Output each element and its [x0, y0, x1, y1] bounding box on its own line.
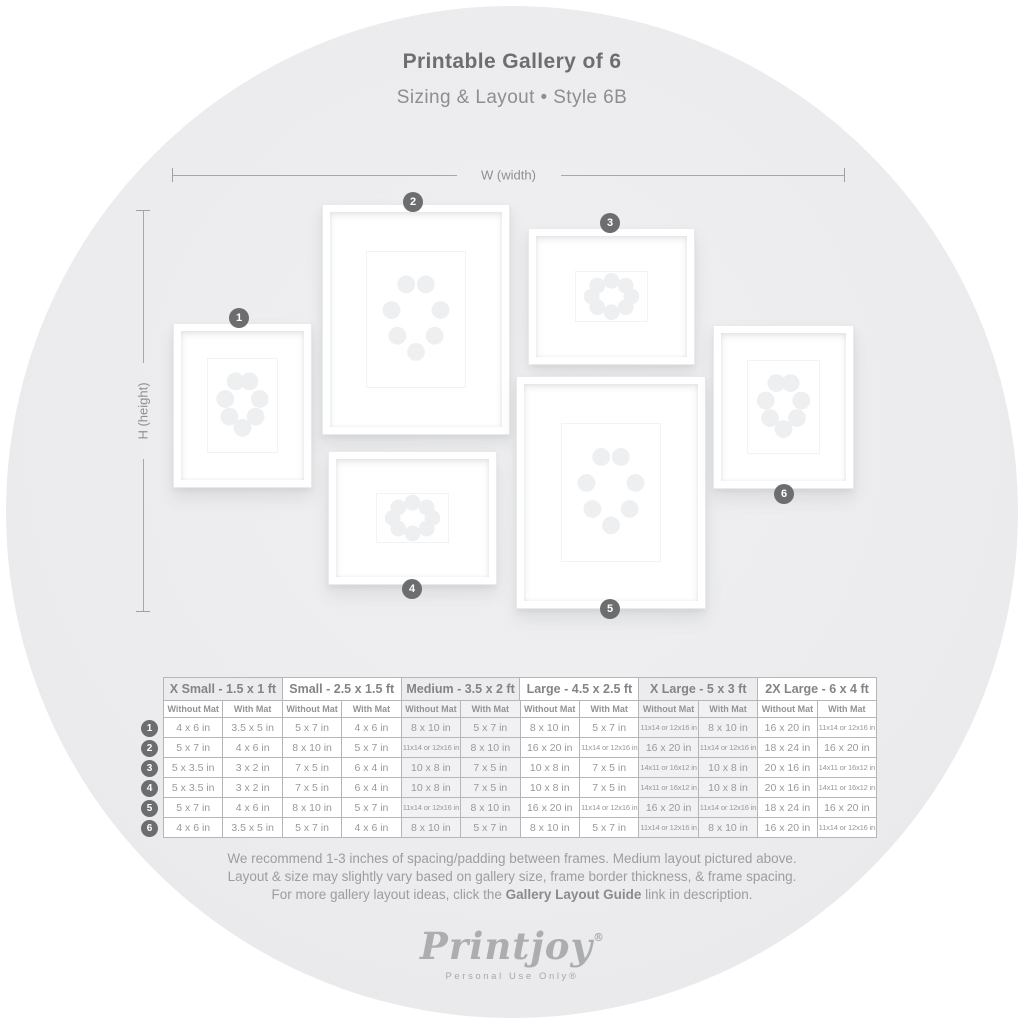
page-subtitle: Sizing & Layout • Style 6B [0, 87, 1024, 109]
width-line-left [172, 175, 457, 176]
frame-5-art [561, 423, 662, 562]
header-xlarge: X Large - 5 x 3 ft [638, 678, 757, 700]
row-badge-6: 6 [141, 820, 158, 837]
size-cell: 14x11 or 16x12 in [638, 758, 697, 777]
frame-4-mat [336, 459, 489, 577]
size-cell: 16 x 20 in [757, 718, 816, 737]
size-cell: 4 x 6 in [164, 718, 222, 737]
size-cell: 16 x 20 in [757, 818, 816, 837]
size-cell: 14x11 or 16x12 in [817, 758, 876, 777]
frame-5 [516, 376, 706, 609]
brand-block: Printjoy® Personal Use Only® [0, 924, 1024, 982]
size-cell: 5 x 7 in [282, 718, 341, 737]
footer-note-line-2: Layout & size may slightly vary based on… [0, 868, 1024, 886]
table-row: 5 x 7 in 4 x 6 in 8 x 10 in 5 x 7 in 11x… [164, 797, 876, 817]
size-cell: 8 x 10 in [698, 818, 757, 837]
height-measure-line: H (height) [136, 210, 150, 612]
size-cell: 4 x 6 in [222, 738, 281, 757]
subheader-cell: Without Mat [520, 701, 579, 717]
size-cell: 4 x 6 in [222, 798, 281, 817]
footer-line3-suffix: link in description. [641, 887, 752, 902]
size-cell: 14x11 or 16x12 in [817, 778, 876, 797]
size-cell: 20 x 16 in [757, 778, 816, 797]
size-cell: 11x14 or 12x16 in [401, 738, 460, 757]
size-cell: 16 x 20 in [638, 798, 697, 817]
subheader-cell: With Mat [341, 701, 400, 717]
size-cell: 4 x 6 in [164, 818, 222, 837]
size-cell: 8 x 10 in [401, 818, 460, 837]
size-cell: 11x14 or 12x16 in [638, 718, 697, 737]
size-cell: 18 x 24 in [757, 798, 816, 817]
frame-1 [173, 323, 312, 488]
size-cell: 18 x 24 in [757, 738, 816, 757]
size-cell: 14x11 or 16x12 in [638, 778, 697, 797]
size-cell: 8 x 10 in [282, 738, 341, 757]
row-badge-column: 1 2 3 4 5 6 [141, 677, 161, 838]
frame-3-badge: 3 [600, 213, 620, 233]
size-cell: 6 x 4 in [341, 758, 400, 777]
subheader-cell: With Mat [817, 701, 876, 717]
size-cell: 5 x 7 in [164, 738, 222, 757]
row-badge-4: 4 [141, 780, 158, 797]
frame-6 [713, 325, 854, 489]
frame-1-mat [181, 331, 304, 480]
size-cell: 16 x 20 in [817, 738, 876, 757]
size-cell: 3 x 2 in [222, 778, 281, 797]
frame-2-badge: 2 [403, 192, 423, 212]
width-measure-label: W (width) [481, 168, 536, 183]
size-cell: 4 x 6 in [341, 718, 400, 737]
frame-6-mat [721, 333, 846, 481]
size-cell: 5 x 7 in [460, 718, 519, 737]
height-line-bottom [143, 459, 144, 612]
brand-logo-text: Printjoy [420, 924, 593, 968]
table-row: 5 x 3.5 in 3 x 2 in 7 x 5 in 6 x 4 in 10… [164, 757, 876, 777]
footer-note-line-1: We recommend 1-3 inches of spacing/paddi… [0, 850, 1024, 868]
footer-note: We recommend 1-3 inches of spacing/paddi… [0, 850, 1024, 904]
subheader-cell: With Mat [460, 701, 519, 717]
header-large: Large - 4.5 x 2.5 ft [519, 678, 638, 700]
frame-3 [528, 228, 695, 365]
frame-6-badge: 6 [774, 484, 794, 504]
size-cell: 8 x 10 in [520, 718, 579, 737]
subheader-cell: With Mat [579, 701, 638, 717]
table-header-row: X Small - 1.5 x 1 ft Small - 2.5 x 1.5 f… [164, 678, 876, 700]
table-row: 4 x 6 in 3.5 x 5 in 5 x 7 in 4 x 6 in 8 … [164, 817, 876, 837]
size-cell: 6 x 4 in [341, 778, 400, 797]
subheader-cell: With Mat [222, 701, 281, 717]
subheader-cell: Without Mat [401, 701, 460, 717]
size-cell: 7 x 5 in [460, 778, 519, 797]
size-cell: 5 x 7 in [282, 818, 341, 837]
size-cell: 5 x 7 in [341, 738, 400, 757]
frame-2 [322, 204, 510, 435]
size-cell: 5 x 7 in [341, 798, 400, 817]
subheader-cell: Without Mat [282, 701, 341, 717]
size-cell: 11x14 or 12x16 in [638, 818, 697, 837]
size-cell: 10 x 8 in [520, 778, 579, 797]
size-cell: 8 x 10 in [698, 718, 757, 737]
size-cell: 10 x 8 in [401, 778, 460, 797]
frame-2-mat [330, 212, 502, 427]
size-table: X Small - 1.5 x 1 ft Small - 2.5 x 1.5 f… [163, 677, 877, 838]
size-cell: 10 x 8 in [698, 758, 757, 777]
size-cell: 8 x 10 in [460, 798, 519, 817]
frame-4-badge: 4 [402, 579, 422, 599]
size-table-section: 1 2 3 4 5 6 X Small - 1.5 x 1 ft Small -… [141, 677, 877, 838]
size-cell: 8 x 10 in [520, 818, 579, 837]
size-cell: 10 x 8 in [520, 758, 579, 777]
frame-3-art [575, 271, 648, 322]
size-cell: 16 x 20 in [520, 738, 579, 757]
table-row: 5 x 7 in 4 x 6 in 8 x 10 in 5 x 7 in 11x… [164, 737, 876, 757]
header-medium: Medium - 3.5 x 2 ft [401, 678, 520, 700]
size-cell: 11x14 or 12x16 in [579, 798, 638, 817]
size-cell: 7 x 5 in [282, 758, 341, 777]
size-cell: 11x14 or 12x16 in [698, 738, 757, 757]
width-measure-line: W (width) [172, 168, 845, 182]
footer-note-line-3: For more gallery layout ideas, click the… [0, 886, 1024, 904]
size-cell: 5 x 3.5 in [164, 758, 222, 777]
size-cell: 8 x 10 in [460, 738, 519, 757]
size-cell: 7 x 5 in [460, 758, 519, 777]
size-cell: 10 x 8 in [401, 758, 460, 777]
size-cell: 11x14 or 12x16 in [698, 798, 757, 817]
size-cell: 16 x 20 in [817, 798, 876, 817]
frame-4-art [376, 493, 449, 543]
brand-logo: Printjoy® [0, 924, 1024, 968]
gallery-layout-guide-link: Gallery Layout Guide [506, 887, 642, 902]
header-small: Small - 2.5 x 1.5 ft [282, 678, 401, 700]
size-cell: 3 x 2 in [222, 758, 281, 777]
header-2xlarge: 2X Large - 6 x 4 ft [757, 678, 876, 700]
size-cell: 5 x 7 in [164, 798, 222, 817]
size-cell: 3.5 x 5 in [222, 818, 281, 837]
size-cell: 8 x 10 in [282, 798, 341, 817]
width-line-right [561, 175, 846, 176]
page-title: Printable Gallery of 6 [0, 50, 1024, 74]
frame-5-badge: 5 [600, 599, 620, 619]
size-cell: 11x14 or 12x16 in [401, 798, 460, 817]
subheader-cell: Without Mat [164, 701, 222, 717]
size-cell: 11x14 or 12x16 in [817, 718, 876, 737]
size-cell: 3.5 x 5 in [222, 718, 281, 737]
infographic-canvas: Printable Gallery of 6 Sizing & Layout •… [0, 0, 1024, 1024]
size-cell: 16 x 20 in [520, 798, 579, 817]
size-cell: 20 x 16 in [757, 758, 816, 777]
row-badge-2: 2 [141, 740, 158, 757]
size-cell: 16 x 20 in [638, 738, 697, 757]
size-cell: 5 x 3.5 in [164, 778, 222, 797]
height-measure-label: H (height) [136, 382, 151, 439]
size-cell: 10 x 8 in [698, 778, 757, 797]
subheader-cell: With Mat [698, 701, 757, 717]
frame-2-art [366, 251, 466, 389]
table-subheader-row: Without Mat With Mat Without Mat With Ma… [164, 700, 876, 717]
header-xsmall: X Small - 1.5 x 1 ft [164, 678, 282, 700]
frame-4 [328, 451, 497, 585]
size-cell: 4 x 6 in [341, 818, 400, 837]
header: Printable Gallery of 6 Sizing & Layout •… [0, 50, 1024, 109]
frame-6-art [747, 360, 820, 455]
row-badge-1: 1 [141, 720, 158, 737]
size-cell: 5 x 7 in [579, 818, 638, 837]
size-cell: 7 x 5 in [579, 778, 638, 797]
subheader-cell: Without Mat [638, 701, 697, 717]
registered-mark-icon: ® [593, 931, 604, 944]
table-row: 4 x 6 in 3.5 x 5 in 5 x 7 in 4 x 6 in 8 … [164, 717, 876, 737]
table-row: 5 x 3.5 in 3 x 2 in 7 x 5 in 6 x 4 in 10… [164, 777, 876, 797]
row-badge-5: 5 [141, 800, 158, 817]
height-line-top [143, 210, 144, 363]
frame-1-art [207, 358, 278, 453]
brand-tagline: Personal Use Only® [0, 971, 1024, 982]
size-cell: 11x14 or 12x16 in [579, 738, 638, 757]
subheader-cell: Without Mat [757, 701, 816, 717]
footer-line3-prefix: For more gallery layout ideas, click the [272, 887, 506, 902]
frame-3-mat [536, 236, 687, 357]
size-cell: 8 x 10 in [401, 718, 460, 737]
size-cell: 5 x 7 in [460, 818, 519, 837]
size-cell: 7 x 5 in [282, 778, 341, 797]
size-cell: 5 x 7 in [579, 718, 638, 737]
frame-1-badge: 1 [229, 308, 249, 328]
size-cell: 7 x 5 in [579, 758, 638, 777]
size-cell: 11x14 or 12x16 in [817, 818, 876, 837]
frame-5-mat [524, 384, 698, 601]
row-badge-3: 3 [141, 760, 158, 777]
